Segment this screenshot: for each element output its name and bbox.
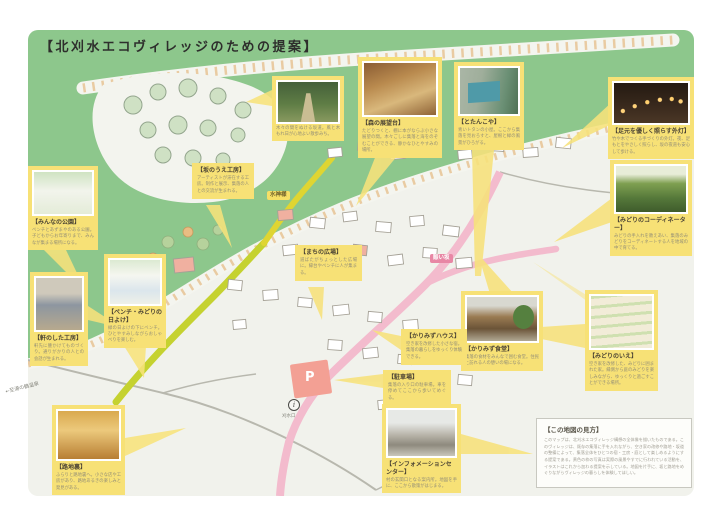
callout-card-rojiura: 【路地裏】 ふらりと路地裏へ。小さな店や工房があり、路地あるきの楽しみと発見があ…	[52, 405, 125, 495]
illustration-minna-no-kouen	[32, 170, 94, 216]
callout-caption: 木々の間をぬける坂道。風と木もれ日が心地よい散歩みち。	[276, 126, 340, 139]
information-icon: i	[288, 399, 300, 411]
callout-card-bench-hiyoke: 【ベンチ・みどりの日よけ】 緑の日よけの下にベンチ。ひとやすみしながらおしゃべり…	[104, 254, 166, 348]
callout-card-mori-tenbodai: 【森の展望台】 たどりつくと、棚に本がならぶ小さな展望の間。木々ごしに集落と海を…	[358, 57, 442, 158]
callout-title: 【みどりのコーディネーター】	[614, 217, 688, 232]
callout-card-gaito: 【足元を優しく照らす外灯】 竹や木でつくる手づくりの外灯。夜、足もとをやさしく照…	[608, 77, 694, 159]
callout-caption: 集落の食材をみんなで囲む食堂。住民と訪れる人の憩いの場になる。	[465, 355, 539, 368]
callout-card-noki-no-shita: 【軒のした工房】 軒先に腰かけてものづくり。通りがかりの人との会話が生まれる。	[30, 272, 88, 366]
callout-title: 【坂のうえ工房】	[197, 167, 249, 175]
water-deity-tag: 水神様	[267, 191, 290, 200]
map-canvas: 木々の間をぬける坂道。風と木もれ日が心地よい散歩みち。 【森の展望台】 たどりつ…	[28, 30, 694, 496]
photo-forest-path	[276, 80, 340, 124]
callout-label-machi-no-hiroba: 【まちの広場】 道ばたがちょっとした広場に。縁台やベンチに人が集まる。	[295, 245, 362, 281]
parking-p-mark: P	[305, 370, 315, 385]
path-highlight	[278, 82, 338, 122]
callout-title: 【かりみずハウス】	[406, 333, 462, 341]
illustration-midori-no-ie	[589, 294, 654, 350]
callout-title: 【とたんこや】	[458, 119, 520, 127]
callout-card-information-center: 【インフォメーションセンター】 村の玄関口となる案内所。地図を手に、ここから散策…	[382, 404, 461, 493]
page-title: 【北刈水エコヴィレッジのための提案】	[40, 36, 319, 55]
callout-card-minna-no-kouen: 【みんなの公園】 ベンチとあずまやのある公園。子どもからお年寄りまで、みんなが集…	[28, 166, 98, 250]
callout-caption: 青いトタンの小屋。ここから集落を見おろすと、屋根と緑の風景がひろがる。	[458, 128, 520, 147]
callout-caption: 空き家を改修した小さな宿。集落の暮らしをゆっくり体験できる。	[406, 342, 462, 361]
photo-rojiura	[56, 409, 121, 461]
photo-coordinator	[614, 164, 688, 214]
callout-caption: 緑の日よけの下にベンチ。ひとやすみしながらおしゃべりを楽しむ。	[108, 326, 162, 345]
callout-caption: 空き家を改修した、みどりに囲まれた家。縁側から庭のみどりを楽しみながら、ゆっくり…	[589, 362, 654, 388]
callout-title: 【路地裏】	[56, 464, 121, 472]
photo-mori-tenbodai	[362, 61, 438, 117]
callout-caption: 集落の入り口の駐車場。車を停めてここから歩いてめぐる。	[388, 383, 446, 402]
callout-card-coordinator: 【みどりのコーディネーター】 みどりの手入れを教えあい、集落のみどりをコーディネ…	[610, 160, 692, 256]
callout-title: 【まちの広場】	[300, 249, 357, 257]
photo-noki-no-shita	[34, 276, 84, 332]
callout-caption: アーティストが滞在する工房。制作と展示、集落の人との交流が生まれる。	[197, 176, 249, 195]
callout-title: 【インフォメーションセンター】	[386, 461, 457, 476]
callout-title: 【足元を優しく照らす外灯】	[612, 128, 690, 136]
callout-title: 【駐車場】	[388, 374, 446, 382]
callout-label-karimizu-house: 【かりみずハウス】 空き家を改修した小さな宿。集落の暮らしをゆっくり体験できる。	[401, 329, 467, 365]
callout-caption: 道ばたがちょっとした広場に。縁台やベンチに人が集まる。	[300, 258, 357, 277]
callout-caption: ベンチとあずまやのある公園。子どもからお年寄りまで、みんなが集まる場所になる。	[32, 228, 94, 247]
callout-caption: たどりつくと、棚に本がならぶ小さな展望の間。木々ごしに集落と海をのぞむことができ…	[362, 129, 438, 155]
callout-title: 【かりみず食堂】	[465, 346, 539, 354]
callout-caption: みどりの手入れを教えあい、集落のみどりをコーディネートする人を地域の中で育てる。	[614, 234, 688, 253]
photo-karimizu-shokudo	[465, 295, 539, 343]
photo-information-center	[386, 408, 457, 458]
callout-card-forest-path: 木々の間をぬける坂道。風と木もれ日が心地よい散歩みち。	[272, 76, 344, 141]
tin-shed-shape	[468, 81, 500, 103]
poster-page: 木々の間をぬける坂道。風と木もれ日が心地よい散歩みち。 【森の展望台】 たどりつ…	[0, 0, 720, 509]
illustration-bench-hiyoke	[108, 258, 162, 306]
callout-card-totankoya: 【とたんこや】 青いトタンの小屋。ここから集落を見おろすと、屋根と緑の風景がひろ…	[454, 62, 524, 150]
callout-caption: 軒先に腰かけてものづくり。通りがかりの人との会話が生まれる。	[34, 344, 84, 363]
legend-title: 【この地図の見方】	[544, 424, 684, 434]
photo-gaito	[612, 81, 690, 125]
callout-title: 【軒のした工房】	[34, 335, 84, 343]
callout-caption: ふらりと路地裏へ。小さな店や工房があり、路地あるきの楽しみと発見がある。	[56, 473, 121, 492]
callout-title: 【みんなの公園】	[32, 219, 94, 227]
legend-body: このマップは、北刈水エコヴィレッジ構想の全体像を描いたものである。このヴィレッジ…	[544, 437, 684, 477]
callout-card-karimizu-shokudo: 【かりみず食堂】 集落の食材をみんなで囲む食堂。住民と訪れる人の憩いの場になる。	[461, 291, 543, 371]
callout-label-saka-no-ue: 【坂のうえ工房】 アーティストが滞在する工房。制作と展示、集落の人との交流が生ま…	[192, 163, 254, 199]
callout-title: 【みどりのいえ】	[589, 353, 654, 361]
callout-card-midori-no-ie: 【みどりのいえ】 空き家を改修した、みどりに囲まれた家。縁側から庭のみどりを楽し…	[585, 290, 658, 391]
photo-totankoya	[458, 66, 520, 116]
garden-tree-shape	[513, 305, 534, 329]
bus-stop-label: 刈水口	[282, 413, 296, 419]
callout-caption: 村の玄関口となる案内所。地図を手に、ここから散策がはじまる。	[386, 478, 457, 491]
callout-title: 【ベンチ・みどりの日よけ】	[108, 309, 162, 324]
callout-title: 【森の展望台】	[362, 120, 438, 128]
callout-label-parking: 【駐車場】 集落の入り口の駐車場。車を停めてここから歩いてめぐる。	[383, 370, 451, 406]
pink-road-name-tag: 賑い坂	[430, 254, 453, 263]
callout-caption: 竹や木でつくる手づくりの外灯。夜、足もとをやさしく照らし、坂の夜道も安心して歩け…	[612, 137, 690, 156]
legend-box: 【この地図の見方】 このマップは、北刈水エコヴィレッジ構想の全体像を描いたもので…	[536, 418, 692, 488]
